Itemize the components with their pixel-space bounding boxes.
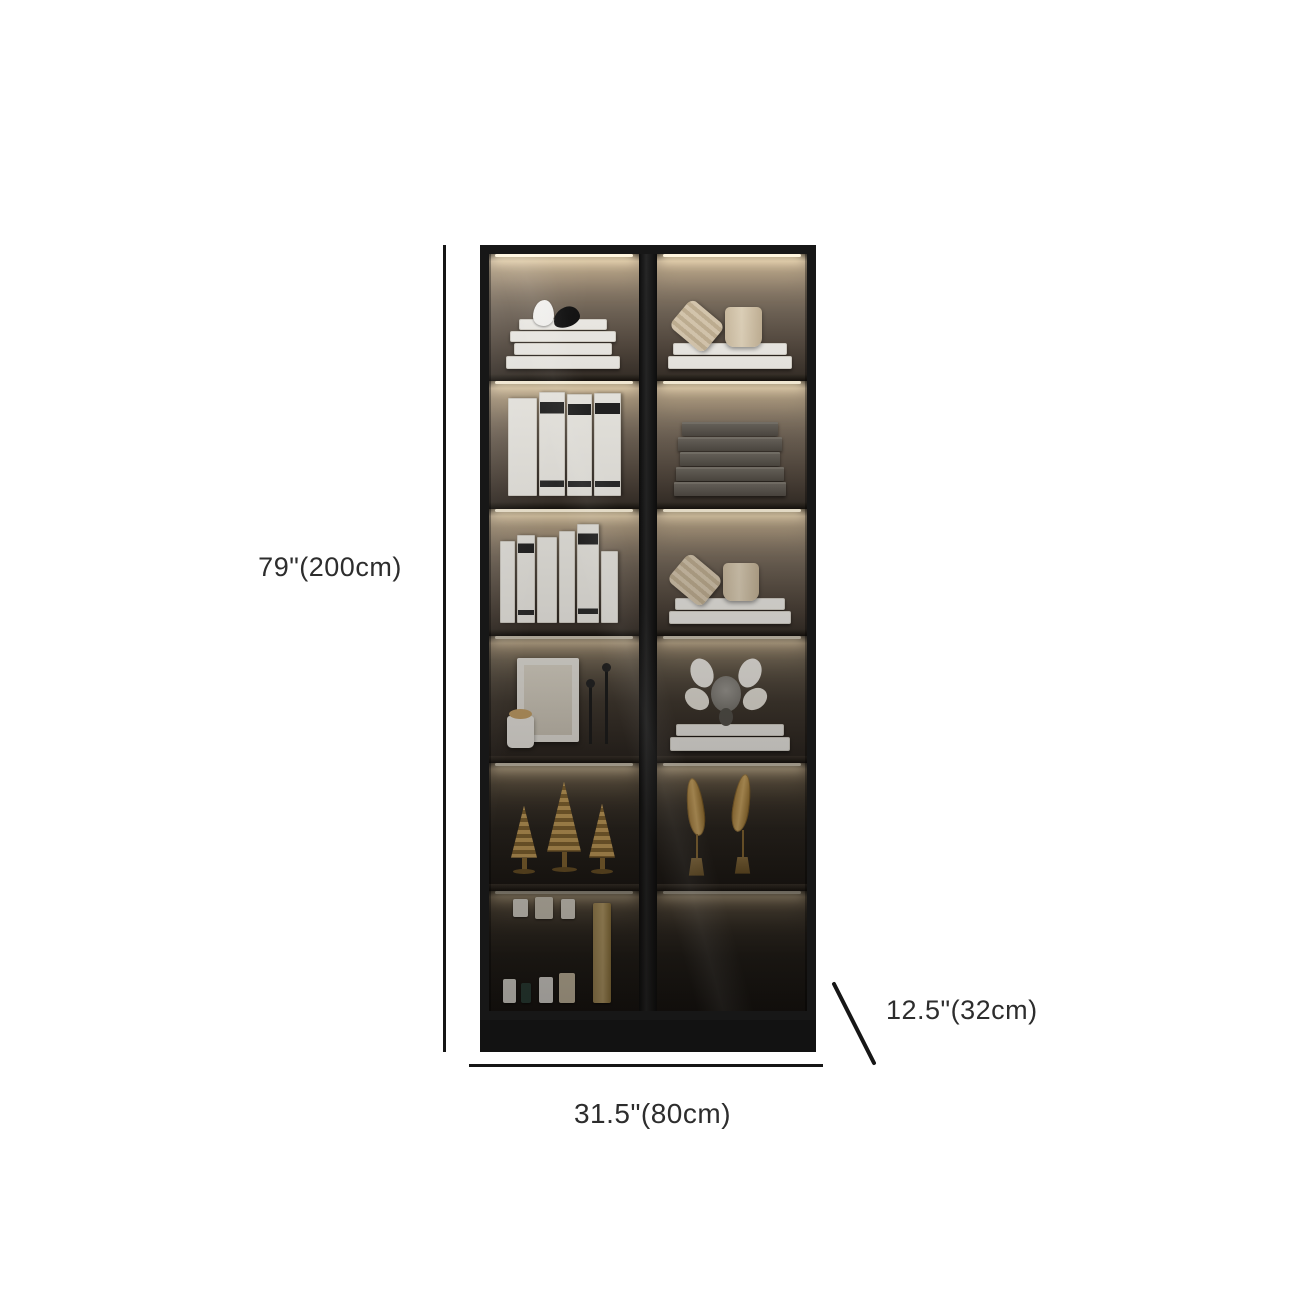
depth-dimension-label: 12.5"(32cm)	[886, 995, 1038, 1026]
shelf-board	[489, 756, 639, 763]
led-strip	[495, 636, 633, 639]
ornament-stand	[562, 852, 567, 868]
shelf-3-right	[657, 509, 807, 629]
shelf-6-right	[657, 891, 807, 1011]
figurine-hand	[681, 684, 714, 715]
white-bird-figurine	[533, 300, 554, 326]
candle-jar	[507, 716, 534, 748]
gold-spiral-ornament	[511, 806, 537, 858]
ornament-stand	[600, 858, 605, 870]
shelf-3-left	[489, 509, 639, 629]
cosmetic-bottle	[503, 979, 516, 1003]
cosmetic-bottle	[521, 983, 531, 1003]
shelf-2-right	[657, 381, 807, 501]
shelf-board	[489, 629, 639, 636]
led-strip	[663, 891, 801, 894]
candlestick	[605, 670, 608, 744]
tall-tan-book	[593, 903, 611, 1003]
dark-box-stack	[673, 421, 787, 496]
ornament-base	[513, 869, 535, 874]
feather-vase	[688, 858, 705, 876]
shelf-board	[489, 884, 639, 891]
height-dimension-label: 79"(200cm)	[235, 552, 425, 583]
candlestick	[589, 686, 592, 744]
ornament-base	[552, 867, 577, 872]
product-dimension-image: 79"(200cm) 31.5"(80cm) 12.5"(32cm)	[0, 0, 1300, 1300]
led-strip	[663, 254, 801, 257]
led-strip	[495, 509, 633, 512]
cabinet-body	[480, 245, 816, 1020]
cabinet-right-column	[657, 254, 807, 1011]
shelf-board	[489, 502, 639, 509]
shelf-board	[489, 374, 639, 381]
ornament-stand	[522, 858, 527, 870]
shelf-board	[657, 374, 807, 381]
shelf-4-left	[489, 636, 639, 756]
gold-spiral-ornament	[547, 782, 581, 852]
shelf-1-right	[657, 254, 807, 374]
gold-spiral-ornament	[589, 804, 615, 858]
led-strip	[495, 891, 633, 894]
shelf-5-right	[657, 763, 807, 883]
cosmetic-bottle	[539, 977, 553, 1003]
small-box	[513, 899, 528, 917]
height-dimension-line	[443, 245, 446, 1052]
feather-stem	[742, 830, 744, 858]
led-strip	[495, 254, 633, 257]
led-strip	[663, 509, 801, 512]
led-strip	[663, 381, 801, 384]
small-box	[535, 897, 553, 919]
book-stack	[667, 597, 793, 624]
led-strip	[495, 763, 633, 766]
shelf-board	[657, 629, 807, 636]
book-stack	[669, 723, 791, 751]
gold-feather-ornament	[684, 777, 708, 837]
standing-books	[499, 524, 619, 623]
shelf-6-left	[489, 891, 639, 1011]
feather-stem	[696, 834, 698, 860]
figurine-hand	[739, 684, 772, 715]
width-dimension-line	[469, 1064, 823, 1067]
shelf-board	[657, 884, 807, 891]
beige-cup	[723, 563, 759, 601]
shelf-4-right	[657, 636, 807, 756]
center-door-stile	[639, 254, 657, 1011]
shelf-1-left	[489, 254, 639, 374]
width-dimension-label: 31.5"(80cm)	[540, 1098, 765, 1130]
gold-feather-ornament	[729, 773, 754, 833]
shelf-board	[657, 756, 807, 763]
led-strip	[663, 763, 801, 766]
cosmetic-bottle	[559, 973, 575, 1003]
cabinet-plinth	[480, 1020, 816, 1052]
feather-vase	[734, 857, 751, 874]
ornament-base	[591, 869, 613, 874]
led-strip	[663, 636, 801, 639]
cabinet-left-column	[489, 254, 639, 1011]
beige-cup	[725, 307, 762, 347]
monkey-figurine-head	[711, 676, 741, 712]
standing-books	[507, 392, 622, 496]
led-strip	[495, 381, 633, 384]
shelf-2-left	[489, 381, 639, 501]
shelf-5-left	[489, 763, 639, 883]
display-cabinet	[480, 245, 816, 1052]
shelf-board	[657, 502, 807, 509]
small-box	[561, 899, 575, 919]
